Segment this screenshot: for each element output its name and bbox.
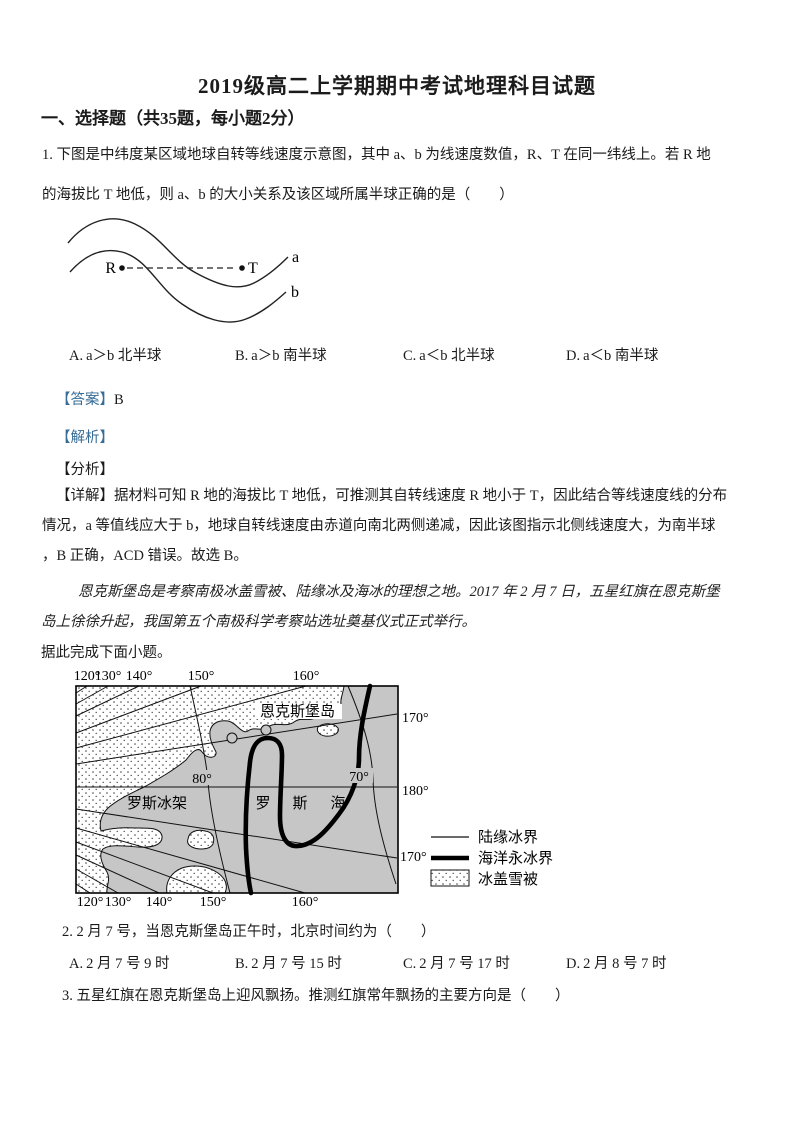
legend-label-land-edge: 陆缘冰界 bbox=[478, 829, 538, 846]
xiangjie-line-1: 【详解】据材料可知 R 地的海拔比 T 地低，可推测其自转线速度 R 地小于 T… bbox=[56, 484, 727, 505]
option-label: A. bbox=[69, 956, 83, 972]
ross-ice-shelf-label: 罗斯冰架 bbox=[127, 795, 187, 812]
jiexi-tag: 【解析】 bbox=[56, 426, 114, 447]
option-text: a＞b 南半球 bbox=[251, 348, 326, 364]
xiangjie-line-2: 情况，a 等值线应大于 b，地球自转线速度由赤道向南北两侧递减，因此该图指示北侧… bbox=[42, 514, 715, 535]
map-top-label-160: 160° bbox=[293, 669, 320, 684]
answer-value: B bbox=[114, 392, 124, 408]
legend-label-sea-ice-edge: 海洋永冰界 bbox=[478, 850, 553, 867]
map-bottom-label-160: 160° bbox=[292, 895, 319, 910]
curve-a-label: a bbox=[292, 249, 299, 266]
option-label: A. bbox=[69, 348, 83, 364]
map-bottom-label-140: 140° bbox=[146, 895, 173, 910]
option-text: 2 月 7 号 17 时 bbox=[419, 956, 510, 972]
map-top-label-150: 150° bbox=[188, 669, 215, 684]
q1-wave-figure: R T a b bbox=[55, 210, 345, 335]
map-right-label-180: 180° bbox=[402, 784, 429, 799]
option-text: 2 月 7 号 15 时 bbox=[251, 956, 342, 972]
legend-stipple-symbol bbox=[431, 870, 469, 886]
legend-label-ice-sheet: 冰盖雪被 bbox=[478, 871, 538, 888]
island-label: 恩克斯堡岛 bbox=[260, 703, 335, 720]
question-2-text: 2. 2 月 7 号，当恩克斯堡岛正午时，北京时间约为（ ） bbox=[62, 920, 435, 941]
ross-sea-label-char3: 海 bbox=[330, 795, 345, 812]
q1-option-c: C.a＜b 北半球 bbox=[403, 344, 495, 365]
q1-option-b: B.a＞b 南半球 bbox=[235, 344, 327, 365]
xiangjie-line-3: ，B 正确，ACD 错误。故选 B。 bbox=[42, 544, 248, 565]
exam-title: 2019级高二上学期期中考试地理科目试题 bbox=[0, 70, 794, 100]
question-1-line-1: 1. 下图是中纬度某区域地球自转等线速度示意图，其中 a、b 为线速度数值，R、… bbox=[42, 143, 711, 164]
exam-page: 2019级高二上学期期中考试地理科目试题 一、选择题（共35题，每小题2分） 1… bbox=[0, 0, 794, 1123]
small-island-1 bbox=[227, 733, 237, 743]
q2-option-a: A.2 月 7 号 9 时 bbox=[69, 952, 169, 973]
ross-sea-label-char1: 罗 bbox=[255, 796, 270, 812]
option-label: B. bbox=[235, 956, 248, 972]
answer-tag: 【答案】 bbox=[56, 392, 114, 408]
map-right-label-170-bottom: 170° bbox=[400, 850, 427, 865]
map-right-label-170-top: 170° bbox=[402, 711, 429, 726]
map-top-label-140: 140° bbox=[126, 669, 153, 684]
q2-option-b: B.2 月 7 号 15 时 bbox=[235, 952, 342, 973]
curve-b-label: b bbox=[291, 284, 299, 301]
ross-sea-label-char2: 斯 bbox=[292, 795, 307, 812]
option-label: D. bbox=[566, 956, 580, 972]
point-t-dot bbox=[239, 265, 245, 271]
point-r-dot bbox=[119, 265, 125, 271]
q2-option-c: C.2 月 7 号 17 时 bbox=[403, 952, 510, 973]
section-heading: 一、选择题（共35题，每小题2分） bbox=[41, 104, 305, 129]
map-lat80-label: 80° bbox=[192, 772, 212, 787]
option-label: B. bbox=[235, 348, 248, 364]
point-t-label: T bbox=[248, 260, 258, 277]
q1-option-d: D.a＜b 南半球 bbox=[566, 344, 658, 365]
q1-option-a: A.a＞b 北半球 bbox=[69, 344, 161, 365]
q2-option-d: D.2 月 8 号 7 时 bbox=[566, 952, 666, 973]
question-1-line-2: 的海拔比 T 地低，则 a、b 的大小关系及该区域所属半球正确的是（ ） bbox=[42, 183, 514, 204]
passage-line-2: 岛上徐徐升起，我国第五个南极科学考察站选址奠基仪式正式举行。 bbox=[41, 610, 476, 631]
option-text: a＜b 北半球 bbox=[419, 348, 494, 364]
option-text: 2 月 7 号 9 时 bbox=[86, 956, 169, 972]
antarctic-map-figure: 120° 130° 140° 150° 160° 120° 130° 140° … bbox=[60, 655, 600, 915]
map-lat70-label: 70° bbox=[349, 770, 369, 785]
small-island-2 bbox=[261, 725, 271, 735]
option-label: D. bbox=[566, 348, 580, 364]
map-legend: 陆缘冰界 海洋永冰界 冰盖雪被 bbox=[431, 829, 553, 888]
map-bottom-label-150: 150° bbox=[200, 895, 227, 910]
fenxi-tag: 【分析】 bbox=[56, 458, 114, 479]
option-text: 2 月 8 号 7 时 bbox=[583, 956, 666, 972]
question-3-text: 3. 五星红旗在恩克斯堡岛上迎风飘扬。推测红旗常年飘扬的主要方向是（ ） bbox=[62, 984, 570, 1005]
ice-patch-oval bbox=[188, 830, 214, 849]
option-label: C. bbox=[403, 348, 416, 364]
map-bottom-label-120: 120° bbox=[77, 895, 104, 910]
passage-line-1: 恩克斯堡岛是考察南极冰盖雪被、陆缘冰及海冰的理想之地。2017 年 2 月 7 … bbox=[78, 580, 720, 601]
answer-row: 【答案】B bbox=[56, 388, 124, 409]
point-r-label: R bbox=[105, 260, 116, 277]
map-bottom-label-130: 130° bbox=[105, 895, 132, 910]
option-label: C. bbox=[403, 956, 416, 972]
option-text: a＜b 南半球 bbox=[583, 348, 658, 364]
option-text: a＞b 北半球 bbox=[86, 348, 161, 364]
map-top-label-130: 130° bbox=[95, 669, 122, 684]
